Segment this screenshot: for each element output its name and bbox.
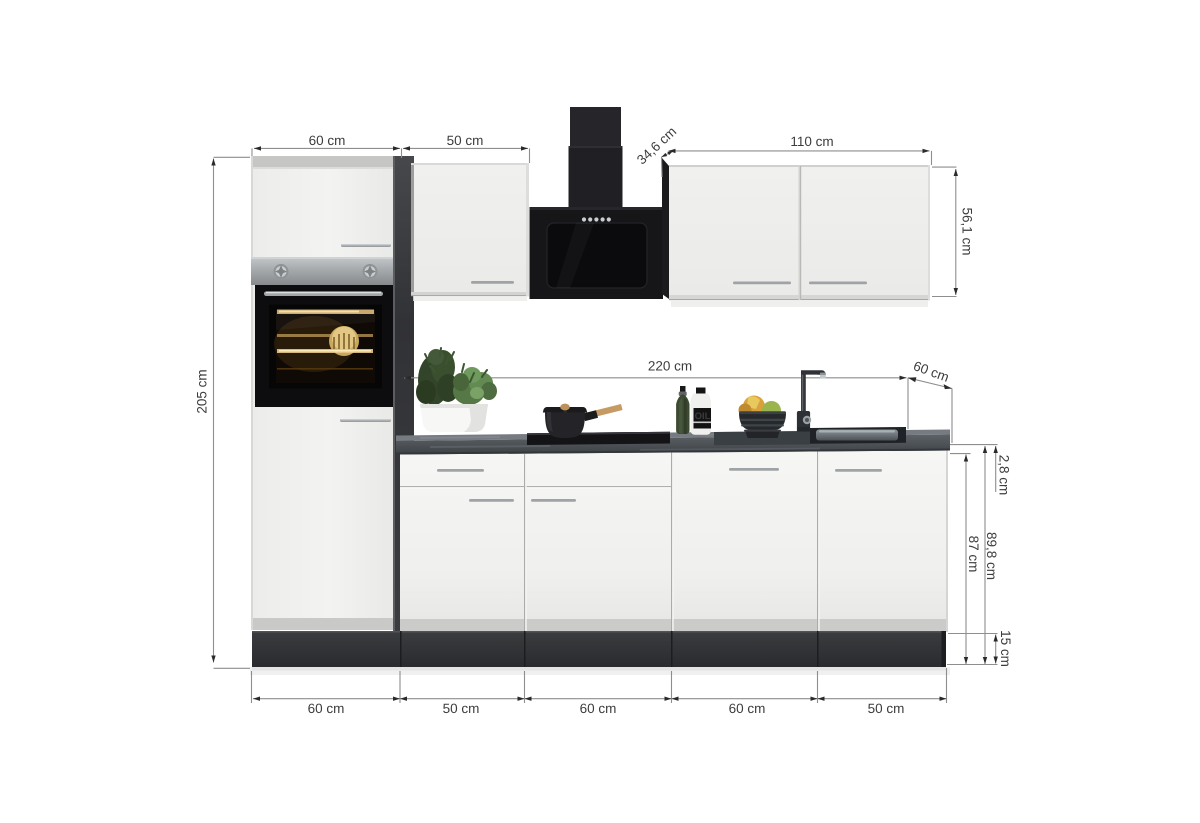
svg-text:60 cm: 60 cm: [309, 133, 346, 148]
svg-text:110 cm: 110 cm: [790, 134, 833, 149]
svg-text:60 cm: 60 cm: [580, 701, 617, 716]
svg-text:50 cm: 50 cm: [868, 701, 905, 716]
svg-text:60 cm: 60 cm: [308, 701, 345, 716]
svg-text:56,1 cm: 56,1 cm: [960, 207, 975, 255]
svg-text:205 cm: 205 cm: [195, 369, 210, 413]
svg-text:15 cm: 15 cm: [998, 630, 1013, 667]
svg-text:87 cm: 87 cm: [966, 536, 981, 573]
svg-text:220 cm: 220 cm: [648, 358, 692, 373]
svg-text:50 cm: 50 cm: [443, 701, 480, 716]
svg-text:2,8 cm: 2,8 cm: [997, 455, 1012, 496]
svg-text:89,8 cm: 89,8 cm: [984, 532, 999, 580]
svg-text:OIL: OIL: [695, 411, 711, 422]
svg-text:60 cm: 60 cm: [729, 701, 766, 716]
svg-text:50 cm: 50 cm: [447, 133, 484, 148]
